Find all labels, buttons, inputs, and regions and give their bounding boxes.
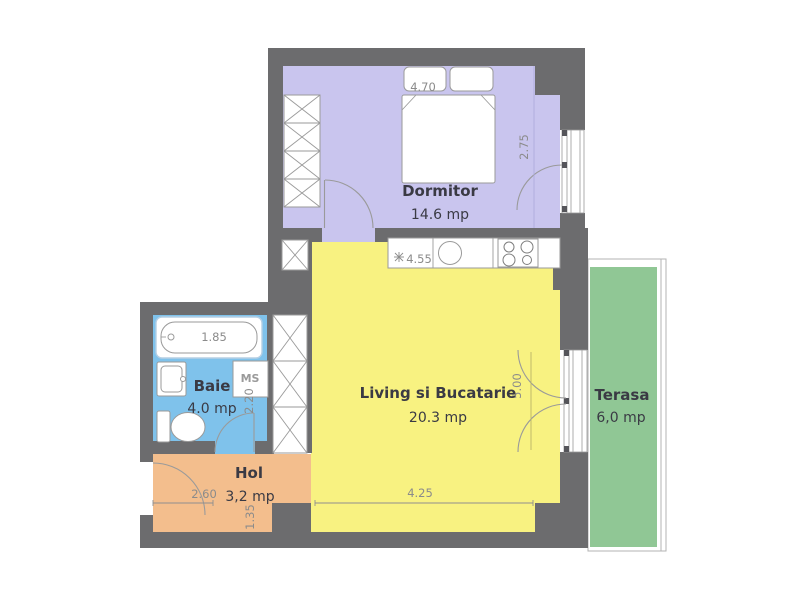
wall-left-lower-b	[140, 515, 153, 548]
wall-topright-b	[560, 95, 585, 130]
dim-bedroom-depth: 2.75	[517, 134, 531, 160]
floor-plan: 4.70 2.75 4.55 5.00 4.25 1.85 2.20 2.60 …	[0, 0, 800, 600]
dim-bath-depth: 2.20	[242, 388, 256, 414]
kitchen-sink-icon	[439, 242, 462, 265]
terrace-deck	[590, 267, 657, 547]
room-label-dormitor: Dormitor	[402, 182, 478, 200]
dim-hall-width: 2.60	[191, 487, 217, 501]
room-terasa	[588, 259, 666, 551]
dim-living-width: 4.25	[407, 486, 433, 500]
pillow-icon	[450, 67, 493, 91]
wall-bath-bottom-left	[140, 441, 215, 454]
room-label-baie: Baie	[194, 377, 231, 395]
hall-closet-column-icon	[273, 315, 307, 453]
light-icon	[394, 252, 404, 262]
room-area-dormitor: 14.6 mp	[411, 207, 469, 223]
room-label-terasa: Terasa	[595, 386, 650, 404]
dormitor-door-threshold	[322, 228, 375, 243]
wall-bath-top	[142, 302, 312, 315]
bathroom-sink-icon	[157, 362, 186, 396]
wall-closet-right-thin	[307, 315, 312, 453]
living-window	[564, 350, 587, 452]
room-area-terasa: 6,0 mp	[596, 410, 645, 426]
wall-living-right-upper	[560, 290, 588, 350]
wall-top	[268, 48, 585, 66]
washing-machine-label: MS	[241, 372, 260, 385]
room-area-living: 20.3 mp	[409, 410, 467, 426]
kitchen-closet-icon	[282, 240, 308, 270]
room-label-living: Living si Bucatarie	[360, 384, 517, 402]
room-label-hol: Hol	[235, 464, 263, 482]
bedroom-window	[562, 130, 584, 213]
floor-plan-page: 4.70 2.75 4.55 5.00 4.25 1.85 2.20 2.60 …	[0, 0, 800, 600]
wall-left-lower-a	[140, 302, 153, 462]
wall-bottom	[142, 532, 588, 548]
room-area-baie: 4.0 mp	[187, 401, 236, 417]
dim-hall-depth: 1.35	[243, 504, 257, 530]
wall-topright-a	[535, 66, 585, 95]
wall-hol-living-jut	[272, 503, 311, 532]
wall-living-bottom-jut	[535, 503, 588, 532]
dim-kitchen-run: 4.55	[406, 252, 432, 266]
stove-icon	[498, 239, 538, 267]
dim-bedroom-width: 4.70	[410, 80, 436, 94]
room-area-hol: 3,2 mp	[225, 489, 274, 505]
bedroom-wardrobe-icon	[284, 95, 320, 207]
wall-below-bedroom-window	[560, 213, 585, 228]
dim-bathtub-length: 1.85	[201, 330, 227, 344]
